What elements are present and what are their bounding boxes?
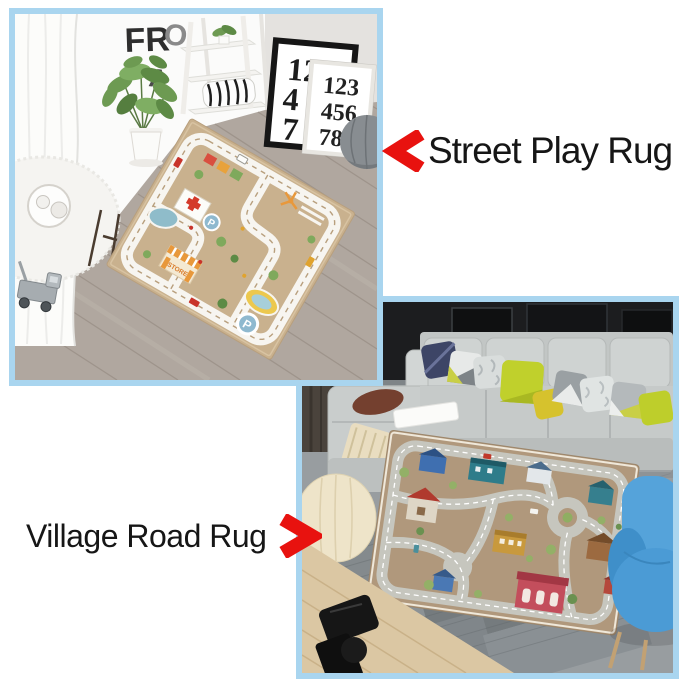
village-rug-label-text: Village Road Rug xyxy=(26,518,266,555)
street-rug-photo: FR O A xyxy=(9,8,383,386)
street-rug-scene: FR O A xyxy=(15,14,377,380)
village-rug-label: Village Road Rug xyxy=(26,512,322,560)
arrow-right-icon xyxy=(276,514,322,558)
product-collage: FR O A xyxy=(0,0,679,679)
street-rug-label-text: Street Play Rug xyxy=(428,130,672,172)
plant-pot xyxy=(131,132,161,160)
teapot xyxy=(51,202,67,218)
poster-front-row: 123 xyxy=(322,73,360,102)
poster-back-row: 7 xyxy=(281,110,300,147)
street-rug-label: Street Play Rug xyxy=(382,128,672,174)
arrow-left-icon xyxy=(382,130,426,172)
pot-saucer xyxy=(129,159,163,167)
village-rug xyxy=(366,430,643,636)
cup xyxy=(37,196,50,209)
zebra-pillow xyxy=(202,77,256,108)
